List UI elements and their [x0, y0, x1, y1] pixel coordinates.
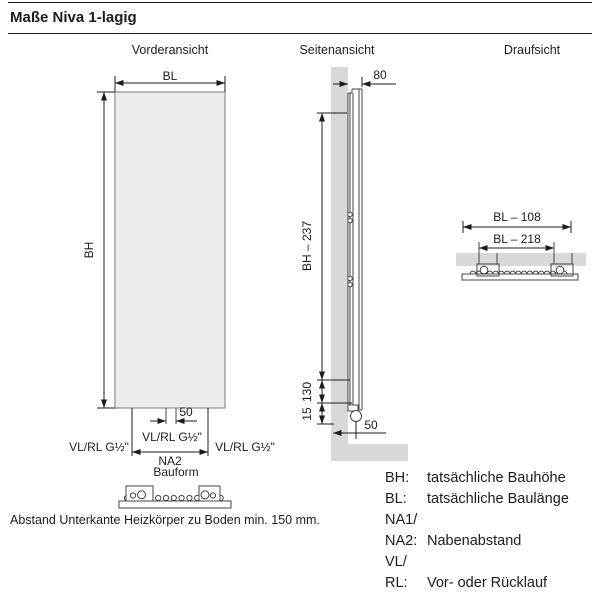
- bl108-dimension-label: BL – 108: [493, 210, 541, 224]
- legend-key: RL:: [385, 573, 427, 594]
- legend-key: BH:: [385, 468, 427, 489]
- left-bracket-pipe: [480, 266, 488, 274]
- radiator-side-profile: [348, 89, 362, 410]
- bauform-section: [119, 486, 231, 508]
- legend-value: [427, 552, 569, 573]
- bl218-dimension-label: BL – 218: [493, 232, 541, 246]
- floor-section: [331, 444, 408, 461]
- dim-130-label: 130: [300, 382, 314, 402]
- legend-key: VL/: [385, 552, 427, 573]
- vlrl-left-label: VL/RL G½": [69, 440, 129, 454]
- floor-clearance-note: Abstand Unterkante Heizkörper zu Boden m…: [10, 513, 320, 527]
- front-view: BL BH 50 NA2 VL/RL G½" VL/RL G½" VL/RL G…: [69, 69, 275, 508]
- front-50-dimension-label: 50: [179, 405, 193, 419]
- side-50-dimension-label: 50: [364, 418, 378, 432]
- page: Maße Niva 1-lagig Vorderansicht Seitenan…: [0, 0, 600, 600]
- depth-dimension-label: 80: [373, 68, 387, 82]
- dim-15-label: 15: [300, 407, 314, 421]
- radiator-front-panel: [115, 92, 225, 408]
- bl-dimension-label: BL: [163, 69, 178, 83]
- bh237-dimension-label: BH – 237: [300, 221, 314, 271]
- vlrl-right-label: VL/RL G½": [215, 440, 275, 454]
- legend: BH: tatsächliche Bauhöhe BL: tatsächlich…: [385, 468, 569, 594]
- front-plate-top-view: [462, 274, 578, 280]
- bh-dimension-label: BH: [82, 242, 96, 259]
- bauform-label: Bauform: [153, 465, 198, 479]
- valve-fitting: [351, 411, 362, 422]
- connection-stubs: [166, 408, 176, 424]
- legend-key: NA2:: [385, 531, 427, 552]
- legend-key: NA1/: [385, 510, 427, 531]
- side-view: 80 BH – 237 130 15 50: [300, 67, 408, 461]
- legend-value: [427, 510, 569, 531]
- top-view: BL – 108 BL – 218: [456, 210, 586, 280]
- vlrl-center-label: VL/RL G½": [142, 430, 202, 444]
- bauform-plate: [119, 501, 231, 508]
- wall-section: [331, 67, 348, 461]
- legend-value: tatsächliche Bauhöhe: [427, 468, 569, 489]
- right-bracket-pipe: [556, 266, 564, 274]
- legend-value: Vor- oder Rücklauf: [427, 573, 569, 594]
- legend-key: BL:: [385, 489, 427, 510]
- legend-value: Nabenabstand: [427, 531, 569, 552]
- legend-value: tatsächliche Baulänge: [427, 489, 569, 510]
